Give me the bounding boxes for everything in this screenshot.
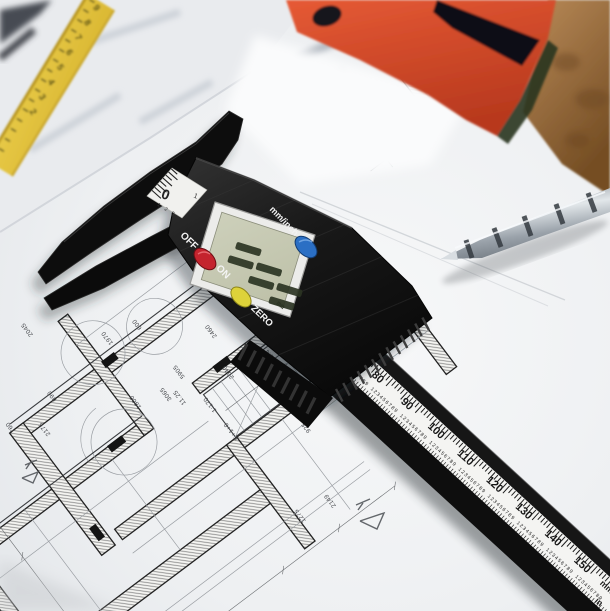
photo-canvas: 2175204519706001800306511.25590524601:17… [0, 0, 610, 611]
photo-digital-caliper-on-blueprint: 2175204519706001800306511.25590524601:17… [0, 0, 610, 611]
